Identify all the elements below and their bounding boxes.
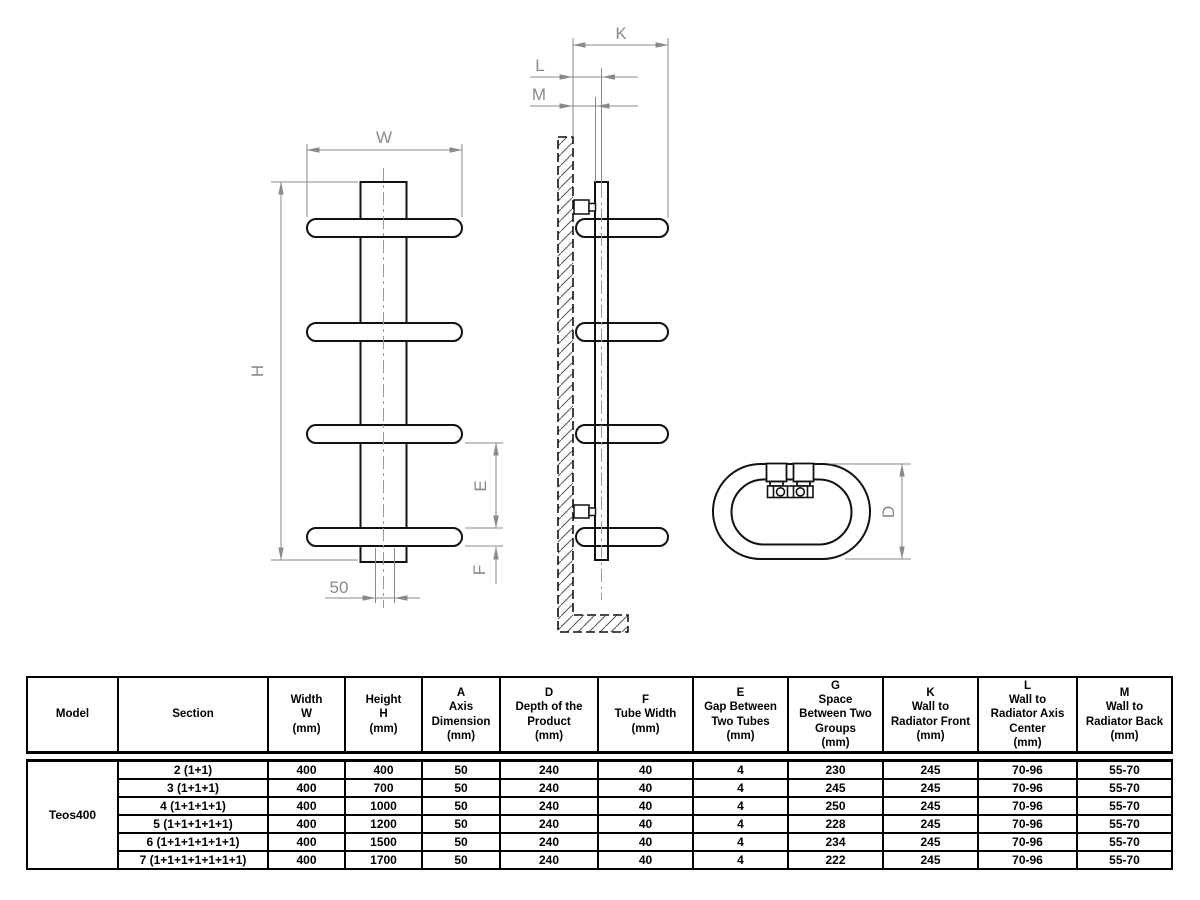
- spec-cell: 50: [422, 833, 500, 851]
- spec-cell: 55-70: [1077, 761, 1172, 780]
- col-header-width: Width W (mm): [268, 677, 345, 753]
- dim-label-f: F: [470, 565, 489, 575]
- front-view: W H E F: [248, 128, 503, 608]
- spec-cell: 55-70: [1077, 833, 1172, 851]
- table-row: 3 (1+1+1) 400 700 50 240 40 4 245 245 70…: [27, 779, 1172, 797]
- spec-cell: 70-96: [978, 797, 1077, 815]
- spec-cell: 400: [268, 761, 345, 780]
- top-view: D: [713, 464, 911, 560]
- dim-m: [530, 97, 638, 182]
- col-header-wall-front: K Wall to Radiator Front (mm): [883, 677, 978, 753]
- spec-cell: 55-70: [1077, 797, 1172, 815]
- spec-cell: 400: [268, 833, 345, 851]
- spec-cell: 4: [693, 833, 788, 851]
- col-header-gap: E Gap Between Two Tubes (mm): [693, 677, 788, 753]
- spec-cell: 245: [883, 815, 978, 833]
- dim-e: [465, 443, 503, 546]
- col-header-model: Model: [27, 677, 118, 753]
- section-cell: 4 (1+1+1+1): [118, 797, 268, 815]
- spec-cell: 245: [883, 833, 978, 851]
- col-header-depth: D Depth of the Product (mm): [500, 677, 598, 753]
- section-cell: 2 (1+1): [118, 761, 268, 780]
- spec-cell: 1200: [345, 815, 422, 833]
- spec-cell: 70-96: [978, 833, 1077, 851]
- spec-cell: 70-96: [978, 851, 1077, 869]
- col-header-wall-axis: L Wall to Radiator Axis Center (mm): [978, 677, 1077, 753]
- side-tube: [576, 528, 668, 546]
- spec-cell: 240: [500, 761, 598, 780]
- spec-cell: 400: [268, 797, 345, 815]
- radiator-spec-sheet: W H E F: [0, 0, 1200, 900]
- side-tube: [576, 323, 668, 341]
- spec-cell: 55-70: [1077, 815, 1172, 833]
- valve-manifold: [768, 486, 814, 498]
- dim-label-d: D: [879, 506, 898, 518]
- table-row: 6 (1+1+1+1+1+1) 400 1500 50 240 40 4 234…: [27, 833, 1172, 851]
- wall-bracket-bottom: [574, 505, 596, 518]
- section-cell: 6 (1+1+1+1+1+1): [118, 833, 268, 851]
- front-tube: [307, 323, 462, 341]
- spec-cell: 40: [598, 815, 693, 833]
- spec-cell: 240: [500, 779, 598, 797]
- table-row: 5 (1+1+1+1+1) 400 1200 50 240 40 4 228 2…: [27, 815, 1172, 833]
- spec-cell: 55-70: [1077, 779, 1172, 797]
- col-header-axis: A Axis Dimension (mm): [422, 677, 500, 753]
- dim-h: [271, 182, 358, 560]
- table-row: 4 (1+1+1+1) 400 1000 50 240 40 4 250 245…: [27, 797, 1172, 815]
- spec-cell: 4: [693, 797, 788, 815]
- technical-drawing: W H E F: [0, 0, 1200, 660]
- valve-right: [794, 464, 814, 487]
- dim-label-m: M: [532, 85, 546, 104]
- side-tube: [576, 219, 668, 237]
- dim-label-e: E: [471, 480, 490, 491]
- dim-label-l: L: [535, 56, 544, 75]
- front-tube: [307, 425, 462, 443]
- dim-l: [530, 68, 638, 185]
- spec-cell: 245: [883, 851, 978, 869]
- side-tube: [576, 425, 668, 443]
- spec-cell: 70-96: [978, 779, 1077, 797]
- section-cell: 5 (1+1+1+1+1): [118, 815, 268, 833]
- table-row: 7 (1+1+1+1+1+1+1) 400 1700 50 240 40 4 2…: [27, 851, 1172, 869]
- wall-bracket-top: [574, 200, 596, 214]
- spec-cell: 245: [883, 779, 978, 797]
- spec-cell: 50: [422, 779, 500, 797]
- spec-cell: 70-96: [978, 815, 1077, 833]
- spec-cell: 4: [693, 851, 788, 869]
- spec-cell: 400: [268, 851, 345, 869]
- spec-cell: 245: [883, 761, 978, 780]
- dim-label-h: H: [248, 365, 267, 377]
- spec-cell: 40: [598, 779, 693, 797]
- spec-table-header: Model Section Width W (mm) Height H (mm)…: [26, 676, 1173, 754]
- spec-cell: 1000: [345, 797, 422, 815]
- spec-cell: 40: [598, 797, 693, 815]
- spec-cell: 4: [693, 761, 788, 780]
- spec-cell: 4: [693, 779, 788, 797]
- spec-cell: 50: [422, 797, 500, 815]
- spec-cell: 50: [422, 815, 500, 833]
- spec-cell: 222: [788, 851, 883, 869]
- spec-cell: 40: [598, 833, 693, 851]
- spec-table-body: Teos400 2 (1+1) 400 400 50 240 40 4 230 …: [26, 759, 1173, 870]
- valve-left: [767, 464, 787, 487]
- dim-label-w: W: [376, 128, 392, 147]
- spec-cell: 70-96: [978, 761, 1077, 780]
- front-tube: [307, 219, 462, 237]
- col-header-space: G Space Between Two Groups (mm): [788, 677, 883, 753]
- col-header-height: Height H (mm): [345, 677, 422, 753]
- spec-cell: 245: [883, 797, 978, 815]
- spec-cell: 240: [500, 815, 598, 833]
- dim-label-k: K: [615, 24, 627, 43]
- spec-cell: 50: [422, 851, 500, 869]
- spec-cell: 1700: [345, 851, 422, 869]
- spec-cell: 1500: [345, 833, 422, 851]
- spec-cell: 240: [500, 851, 598, 869]
- spec-cell: 40: [598, 851, 693, 869]
- dim-k: [573, 38, 668, 218]
- col-header-wall-back: M Wall to Radiator Back (mm): [1077, 677, 1172, 753]
- spec-cell: 4: [693, 815, 788, 833]
- spec-cell: 50: [422, 761, 500, 780]
- spec-cell: 250: [788, 797, 883, 815]
- spec-cell: 400: [268, 779, 345, 797]
- spec-cell: 400: [345, 761, 422, 780]
- col-header-tube-width: F Tube Width (mm): [598, 677, 693, 753]
- spec-cell: 228: [788, 815, 883, 833]
- model-cell: Teos400: [27, 761, 118, 870]
- spec-cell: 240: [500, 833, 598, 851]
- section-cell: 3 (1+1+1): [118, 779, 268, 797]
- col-header-section: Section: [118, 677, 268, 753]
- front-tube: [307, 528, 462, 546]
- spec-cell: 700: [345, 779, 422, 797]
- spec-cell: 234: [788, 833, 883, 851]
- spec-cell: 240: [500, 797, 598, 815]
- table-row: Teos400 2 (1+1) 400 400 50 240 40 4 230 …: [27, 761, 1172, 780]
- spec-cell: 55-70: [1077, 851, 1172, 869]
- spec-cell: 40: [598, 761, 693, 780]
- section-cell: 7 (1+1+1+1+1+1+1): [118, 851, 268, 869]
- side-view: K L M: [530, 24, 668, 632]
- spec-cell: 400: [268, 815, 345, 833]
- spec-cell: 230: [788, 761, 883, 780]
- spec-cell: 245: [788, 779, 883, 797]
- dim-label-axis: 50: [330, 578, 349, 597]
